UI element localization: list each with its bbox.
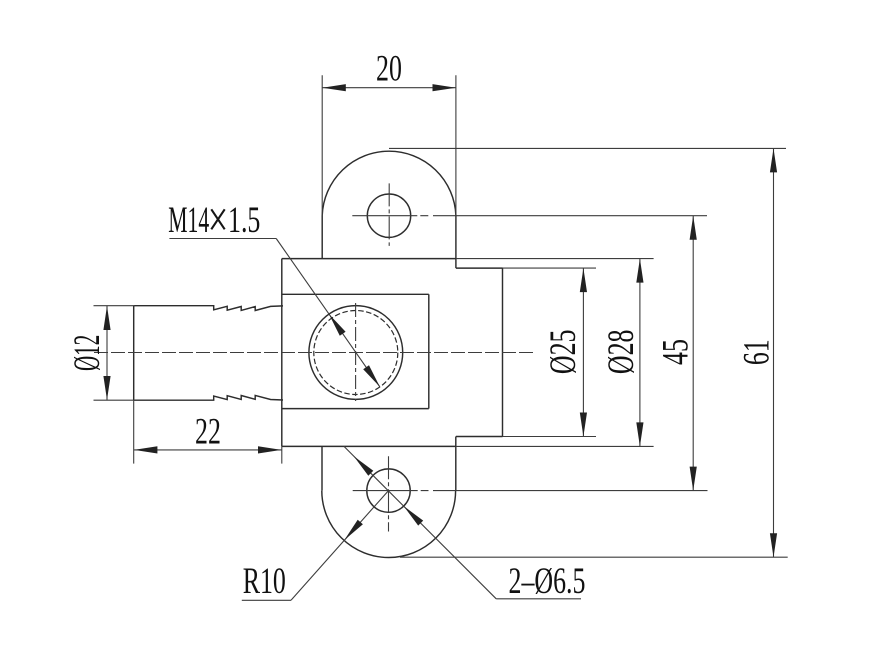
svg-text:Ø25: Ø25	[542, 330, 583, 375]
svg-text:Ø12: Ø12	[66, 335, 108, 371]
svg-text:20: 20	[376, 48, 402, 89]
svg-text:22: 22	[195, 411, 221, 452]
svg-text:R10: R10	[243, 561, 286, 602]
svg-text:61: 61	[736, 339, 777, 365]
svg-text:M14: M14	[168, 199, 209, 241]
svg-text:45: 45	[655, 339, 696, 365]
svg-text:1.5: 1.5	[228, 200, 260, 241]
svg-text:2–Ø6.5: 2–Ø6.5	[509, 561, 586, 602]
svg-text:Ø28: Ø28	[601, 330, 642, 375]
